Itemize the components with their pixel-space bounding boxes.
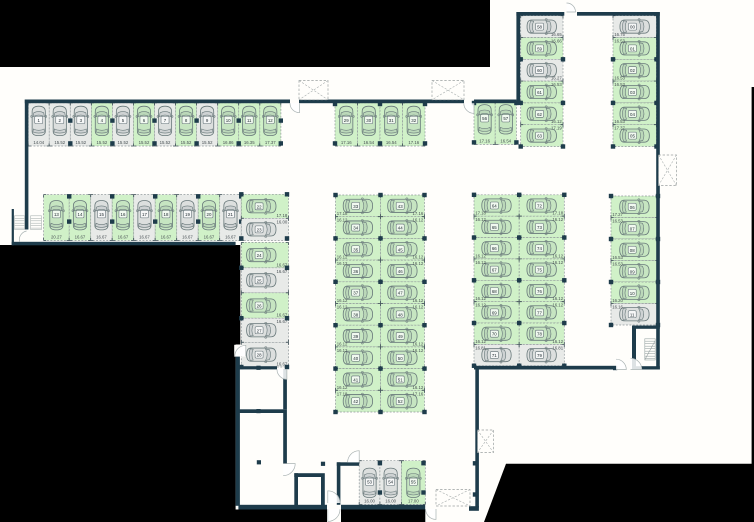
svg-text:05: 05 <box>630 134 635 139</box>
svg-text:56: 56 <box>482 116 487 121</box>
svg-text:31: 31 <box>389 118 394 123</box>
svg-text:11: 11 <box>630 312 635 317</box>
svg-text:16.12: 16.12 <box>475 253 486 258</box>
svg-text:16.53: 16.53 <box>614 119 625 124</box>
svg-text:16.27: 16.27 <box>551 76 562 81</box>
svg-text:16.12: 16.12 <box>551 119 562 124</box>
svg-text:20.27: 20.27 <box>51 234 62 239</box>
svg-text:16.53: 16.53 <box>551 82 562 87</box>
svg-text:17.19: 17.19 <box>551 126 562 131</box>
svg-text:43: 43 <box>398 204 403 209</box>
svg-text:10: 10 <box>226 118 231 123</box>
svg-text:16.12: 16.12 <box>413 261 424 266</box>
svg-text:16.53: 16.53 <box>612 219 623 224</box>
svg-text:16.12: 16.12 <box>475 339 486 344</box>
svg-text:75: 75 <box>537 268 542 273</box>
svg-text:17.18: 17.18 <box>475 211 486 216</box>
svg-text:02: 02 <box>630 68 635 73</box>
svg-text:71: 71 <box>492 353 497 358</box>
svg-text:16.12: 16.12 <box>337 218 348 223</box>
svg-text:48: 48 <box>398 312 403 317</box>
svg-text:70: 70 <box>492 332 497 337</box>
svg-text:17.16: 17.16 <box>479 139 490 144</box>
svg-text:16.67: 16.67 <box>96 234 107 239</box>
svg-text:25: 25 <box>257 278 262 283</box>
svg-text:17.00: 17.00 <box>408 499 419 504</box>
svg-text:77: 77 <box>537 310 542 315</box>
svg-text:49: 49 <box>398 334 403 339</box>
svg-text:16.12: 16.12 <box>552 217 563 222</box>
svg-text:17.16: 17.16 <box>341 140 352 145</box>
svg-text:16.67: 16.67 <box>182 234 193 239</box>
svg-text:19: 19 <box>185 212 190 217</box>
svg-text:17.16: 17.16 <box>413 211 424 216</box>
svg-text:16.12: 16.12 <box>337 341 348 346</box>
svg-text:18: 18 <box>164 212 169 217</box>
svg-text:16.12: 16.12 <box>475 296 486 301</box>
svg-text:39: 39 <box>353 334 358 339</box>
svg-text:30: 30 <box>366 118 371 123</box>
svg-text:21: 21 <box>228 212 233 217</box>
svg-text:03: 03 <box>630 90 635 95</box>
svg-text:28: 28 <box>257 353 262 358</box>
svg-text:16.12: 16.12 <box>337 348 348 353</box>
svg-text:16.12: 16.12 <box>413 218 424 223</box>
svg-text:42: 42 <box>353 399 358 404</box>
svg-text:74: 74 <box>537 246 542 251</box>
svg-text:15.52: 15.52 <box>96 140 107 145</box>
svg-text:16: 16 <box>121 212 126 217</box>
svg-text:16.00: 16.00 <box>364 499 375 504</box>
svg-text:16.65: 16.65 <box>551 32 562 37</box>
svg-text:13: 13 <box>54 212 59 217</box>
svg-text:16.12: 16.12 <box>413 385 424 390</box>
svg-text:16.67: 16.67 <box>75 234 86 239</box>
svg-text:16.12: 16.12 <box>337 298 348 303</box>
svg-text:57: 57 <box>503 116 508 121</box>
svg-text:16.54: 16.54 <box>500 139 511 144</box>
svg-text:37: 37 <box>353 291 358 296</box>
svg-text:15.52: 15.52 <box>181 140 192 145</box>
svg-text:16.67: 16.67 <box>118 234 129 239</box>
svg-text:41: 41 <box>353 377 358 382</box>
svg-text:04: 04 <box>630 112 635 117</box>
svg-text:72: 72 <box>537 203 542 208</box>
svg-text:06: 06 <box>630 205 635 210</box>
svg-text:69: 69 <box>492 310 497 315</box>
svg-text:59: 59 <box>537 46 542 51</box>
svg-text:65: 65 <box>492 225 497 230</box>
svg-text:15.52: 15.52 <box>202 140 213 145</box>
svg-text:44: 44 <box>398 226 403 231</box>
svg-text:16.53: 16.53 <box>614 39 625 44</box>
svg-text:16.54: 16.54 <box>386 140 397 145</box>
svg-text:07: 07 <box>630 226 635 231</box>
svg-text:23: 23 <box>257 227 262 232</box>
svg-text:47: 47 <box>398 291 403 296</box>
svg-text:46: 46 <box>398 269 403 274</box>
svg-text:51: 51 <box>398 377 403 382</box>
svg-text:16.53: 16.53 <box>612 262 623 267</box>
svg-text:17.16: 17.16 <box>408 140 419 145</box>
svg-text:00: 00 <box>630 25 635 30</box>
svg-text:16.67: 16.67 <box>204 234 215 239</box>
svg-text:01: 01 <box>630 46 635 51</box>
svg-text:17.18: 17.18 <box>337 211 348 216</box>
svg-text:58: 58 <box>537 25 542 30</box>
svg-text:38: 38 <box>353 312 358 317</box>
svg-text:11: 11 <box>247 118 252 123</box>
svg-text:16.53: 16.53 <box>612 255 623 260</box>
svg-text:16.12: 16.12 <box>413 305 424 310</box>
svg-text:16.12: 16.12 <box>413 348 424 353</box>
svg-text:16.67: 16.67 <box>161 234 172 239</box>
svg-text:17.37: 17.37 <box>614 126 625 131</box>
svg-text:53: 53 <box>367 480 372 485</box>
svg-text:16.16: 16.16 <box>612 305 623 310</box>
svg-text:52: 52 <box>398 399 403 404</box>
svg-text:16.12: 16.12 <box>413 255 424 260</box>
svg-text:16.12: 16.12 <box>337 385 348 390</box>
svg-text:16.67: 16.67 <box>139 234 150 239</box>
svg-text:64: 64 <box>492 203 497 208</box>
svg-text:67: 67 <box>492 268 497 273</box>
svg-text:15: 15 <box>99 212 104 217</box>
svg-text:16.12: 16.12 <box>413 341 424 346</box>
svg-text:14.04: 14.04 <box>33 140 44 145</box>
svg-text:15.52: 15.52 <box>118 140 129 145</box>
svg-text:66: 66 <box>492 246 497 251</box>
svg-text:16.12: 16.12 <box>552 303 563 308</box>
svg-text:32: 32 <box>411 118 416 123</box>
svg-text:16.00: 16.00 <box>385 499 396 504</box>
svg-text:16.54: 16.54 <box>363 140 374 145</box>
svg-text:34: 34 <box>353 226 358 231</box>
svg-text:61: 61 <box>537 90 542 95</box>
svg-text:45: 45 <box>398 247 403 252</box>
svg-text:15.52: 15.52 <box>75 140 86 145</box>
svg-text:60: 60 <box>537 68 542 73</box>
svg-text:16.86: 16.86 <box>223 140 234 145</box>
svg-text:17.18: 17.18 <box>337 391 348 396</box>
svg-text:16.12: 16.12 <box>552 296 563 301</box>
svg-text:16.81: 16.81 <box>552 345 563 350</box>
svg-text:76: 76 <box>537 289 542 294</box>
svg-text:15.52: 15.52 <box>160 140 171 145</box>
svg-text:16.12: 16.12 <box>475 260 486 265</box>
svg-text:16.12: 16.12 <box>337 305 348 310</box>
svg-text:50: 50 <box>398 356 403 361</box>
svg-text:17.37: 17.37 <box>265 140 276 145</box>
svg-text:16.35: 16.35 <box>244 140 255 145</box>
svg-text:10: 10 <box>630 291 635 296</box>
svg-text:16.20: 16.20 <box>612 298 623 303</box>
svg-text:16.12: 16.12 <box>337 261 348 266</box>
svg-text:54: 54 <box>388 480 393 485</box>
svg-text:24: 24 <box>257 253 262 258</box>
svg-text:20: 20 <box>207 212 212 217</box>
svg-text:15.52: 15.52 <box>54 140 65 145</box>
svg-text:16.12: 16.12 <box>337 255 348 260</box>
svg-text:68: 68 <box>492 289 497 294</box>
svg-text:17: 17 <box>142 212 147 217</box>
svg-text:17.16: 17.16 <box>413 391 424 396</box>
svg-text:63: 63 <box>537 134 542 139</box>
svg-text:29: 29 <box>344 118 349 123</box>
svg-text:08: 08 <box>630 248 635 253</box>
svg-text:33: 33 <box>353 204 358 209</box>
svg-text:16.53: 16.53 <box>614 82 625 87</box>
svg-text:73: 73 <box>537 225 542 230</box>
svg-text:16.12: 16.12 <box>413 298 424 303</box>
svg-text:79: 79 <box>537 353 542 358</box>
svg-text:16.81: 16.81 <box>475 345 486 350</box>
svg-text:16.12: 16.12 <box>552 260 563 265</box>
svg-text:26: 26 <box>257 304 262 309</box>
svg-text:09: 09 <box>630 269 635 274</box>
svg-text:36: 36 <box>353 269 358 274</box>
svg-text:17.27: 17.27 <box>612 212 623 217</box>
svg-text:16.67: 16.67 <box>225 234 236 239</box>
svg-text:16.75: 16.75 <box>614 32 625 37</box>
svg-text:16.00: 16.00 <box>277 219 288 224</box>
svg-text:17.18: 17.18 <box>277 213 288 218</box>
svg-text:78: 78 <box>537 332 542 337</box>
svg-text:16.53: 16.53 <box>614 76 625 81</box>
svg-text:14: 14 <box>78 212 83 217</box>
svg-text:40: 40 <box>353 356 358 361</box>
svg-text:15.52: 15.52 <box>139 140 150 145</box>
svg-text:16.12: 16.12 <box>475 217 486 222</box>
svg-text:35: 35 <box>353 247 358 252</box>
svg-text:16.12: 16.12 <box>552 339 563 344</box>
svg-text:16.66: 16.66 <box>551 39 562 44</box>
svg-text:22: 22 <box>257 204 262 209</box>
svg-text:62: 62 <box>537 112 542 117</box>
svg-text:27: 27 <box>257 328 262 333</box>
svg-text:17.18: 17.18 <box>552 211 563 216</box>
svg-text:16.12: 16.12 <box>552 253 563 258</box>
svg-text:12: 12 <box>268 118 273 123</box>
svg-text:16.12: 16.12 <box>475 303 486 308</box>
svg-text:55: 55 <box>411 480 416 485</box>
